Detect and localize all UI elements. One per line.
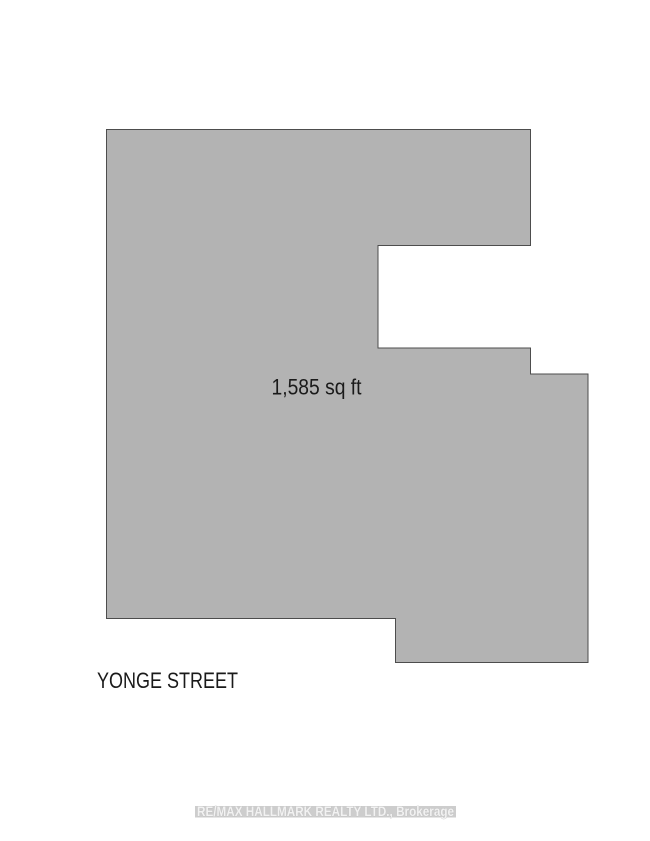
svg-text:1,585 sq ft: 1,585 sq ft [272,375,362,400]
svg-text:RE/MAX HALLMARK REALTY LTD., B: RE/MAX HALLMARK REALTY LTD., Brokerage [197,803,454,819]
svg-text:YONGE STREET: YONGE STREET [97,668,238,693]
